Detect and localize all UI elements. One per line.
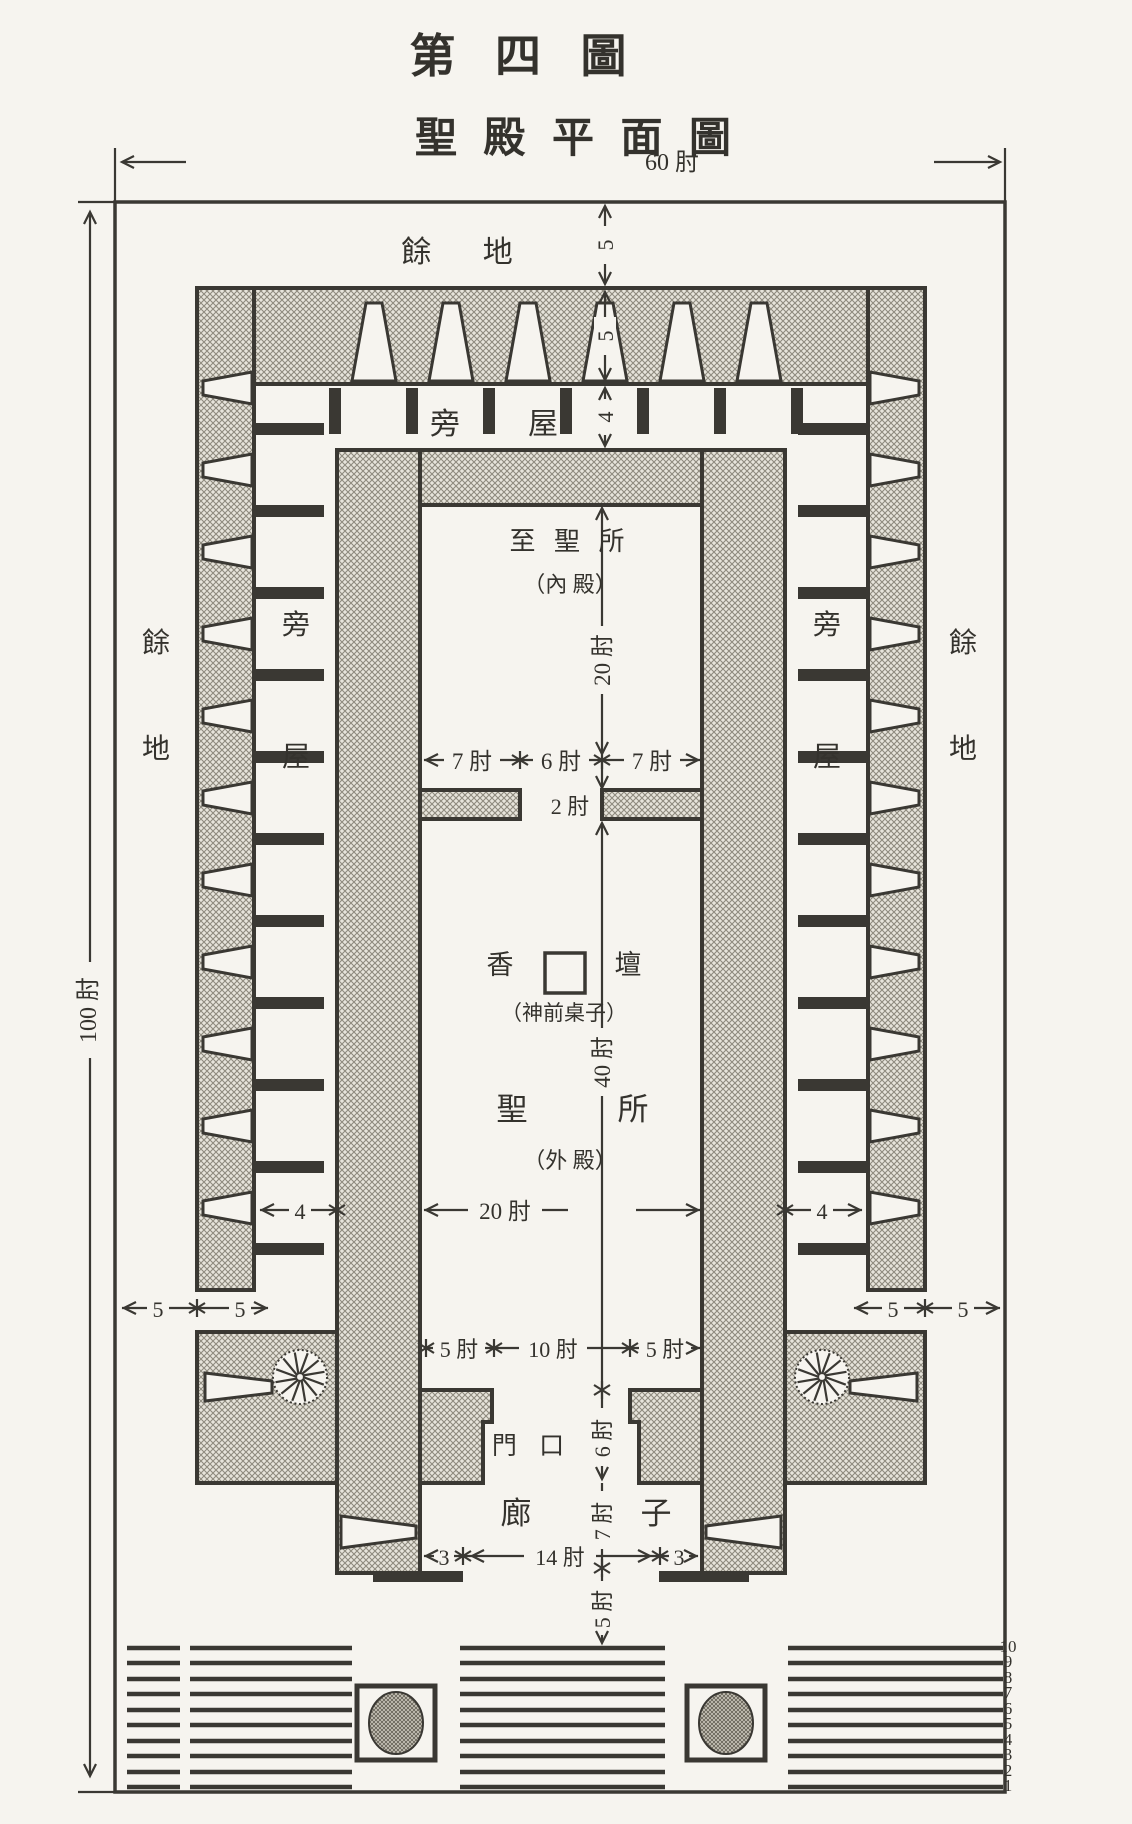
dim-porch-wall: 5 肘	[590, 1590, 615, 1629]
porch-front-wall-right	[659, 1571, 749, 1582]
side-rooms-right-char-2: 屋	[813, 742, 841, 773]
most-holy-place-alt-label: （內 殿）	[523, 572, 617, 597]
dim-rooms-top: 4	[593, 412, 618, 423]
temple-floor-plan-figure: 第 四 圖 聖 殿 平 面 圖 60 肘 100 肘	[0, 0, 1132, 1824]
figure-number-title: 第 四 圖	[410, 31, 641, 82]
holy-place-char-1: 聖	[497, 1092, 528, 1127]
side-rooms-top-char-2: 屋	[528, 408, 558, 441]
spiral-stair-icon-right	[795, 1350, 849, 1404]
corner-block-right	[785, 1332, 925, 1483]
dim-rooms-left-w: 4	[295, 1199, 306, 1224]
steps-middle-section	[460, 1648, 665, 1787]
outer-wall-top	[197, 288, 925, 384]
holy-place-alt-label: （外 殿）	[523, 1148, 617, 1173]
porch-char-2: 子	[641, 1496, 672, 1531]
most-holy-place-label: 至 聖 所	[509, 527, 630, 556]
dim-most-holy-length: 20 肘	[590, 634, 615, 686]
steps-right-section	[788, 1648, 1003, 1787]
right-room-partitions	[798, 429, 866, 1249]
top-room-partitions	[335, 388, 797, 434]
dim-margin-top: 5	[593, 240, 618, 251]
dim-margin-br-b: 5	[958, 1297, 969, 1322]
dim-rooms-right-w: 4	[817, 1199, 828, 1224]
front-wall-right	[630, 1390, 702, 1483]
spiral-stair-icon-left	[273, 1350, 327, 1404]
dim-overall-height-label: 100 肘	[75, 977, 102, 1043]
left-room-partitions	[256, 429, 324, 1249]
dim-wall-left-len: 7 肘	[452, 749, 492, 774]
side-rooms-right-char-1: 旁	[813, 609, 841, 641]
dim-porch-jamb-right: 3	[674, 1545, 685, 1570]
open-ground-right-char-1: 餘	[949, 627, 977, 659]
incense-altar-symbol	[545, 953, 585, 993]
front-wall-left	[420, 1390, 492, 1483]
open-ground-right-char-2: 地	[949, 733, 977, 765]
incense-altar-alt-label: （神前桌子）	[501, 1001, 627, 1025]
doorway-label: 門 口	[492, 1433, 572, 1460]
pillar-icon-right	[699, 1692, 753, 1754]
dim-porch-jamb-left: 3	[439, 1545, 450, 1570]
steps-left-stub	[127, 1648, 180, 1787]
incense-altar-char-2: 壇	[615, 950, 642, 980]
entrance-steps	[127, 1648, 1003, 1787]
dim-partition-thick: 2 肘	[551, 794, 590, 819]
dim-margin-br-a: 5	[888, 1297, 899, 1322]
open-ground-left-char-2: 地	[142, 733, 170, 765]
side-rooms-left-char-2: 屋	[282, 742, 310, 773]
dim-front-wall-right: 5 肘	[646, 1337, 685, 1362]
dim-wall-top: 5	[593, 331, 618, 342]
open-ground-top-label: 餘 地	[401, 236, 535, 269]
pillar-icon-left	[369, 1692, 423, 1754]
dim-front-wall-left: 5 肘	[440, 1337, 479, 1362]
steps-left-section	[190, 1648, 352, 1787]
side-rooms-left-char-1: 旁	[282, 609, 310, 641]
dim-door-mid: 6 肘	[541, 749, 581, 774]
partition-wall-right	[602, 790, 702, 819]
holy-place-char-2: 所	[618, 1092, 649, 1127]
inner-wall-left	[337, 450, 420, 1573]
dim-wall-right-len: 7 肘	[632, 749, 672, 774]
inner-wall-right	[702, 450, 785, 1573]
dim-front-door: 10 肘	[528, 1337, 578, 1362]
open-ground-left-char-1: 餘	[142, 627, 170, 659]
dim-porch-opening: 14 肘	[535, 1545, 585, 1570]
incense-altar-char-1: 香	[487, 950, 514, 980]
dim-overall-height: 100 肘	[74, 212, 102, 1776]
dim-doorway-depth: 6 肘	[590, 1419, 615, 1458]
dim-holy-length: 40 肘	[590, 1036, 615, 1088]
dim-margin-bl-b: 5	[235, 1297, 246, 1322]
porch-char-1: 廊	[501, 1496, 532, 1531]
temple-plan-page: 第 四 圖 聖 殿 平 面 圖 60 肘 100 肘	[0, 0, 1132, 1824]
partition-wall-left	[420, 790, 520, 819]
dim-margin-bl-a: 5	[153, 1297, 164, 1322]
porch-front-wall-left	[373, 1571, 463, 1582]
dim-overall-width-label: 60 肘	[645, 149, 699, 176]
dim-holy-width: 20 肘	[479, 1199, 531, 1224]
step-number: 1	[1004, 1776, 1013, 1795]
dim-porch-depth: 7 肘	[590, 1502, 615, 1541]
side-rooms-top-char-1: 旁	[430, 408, 460, 441]
